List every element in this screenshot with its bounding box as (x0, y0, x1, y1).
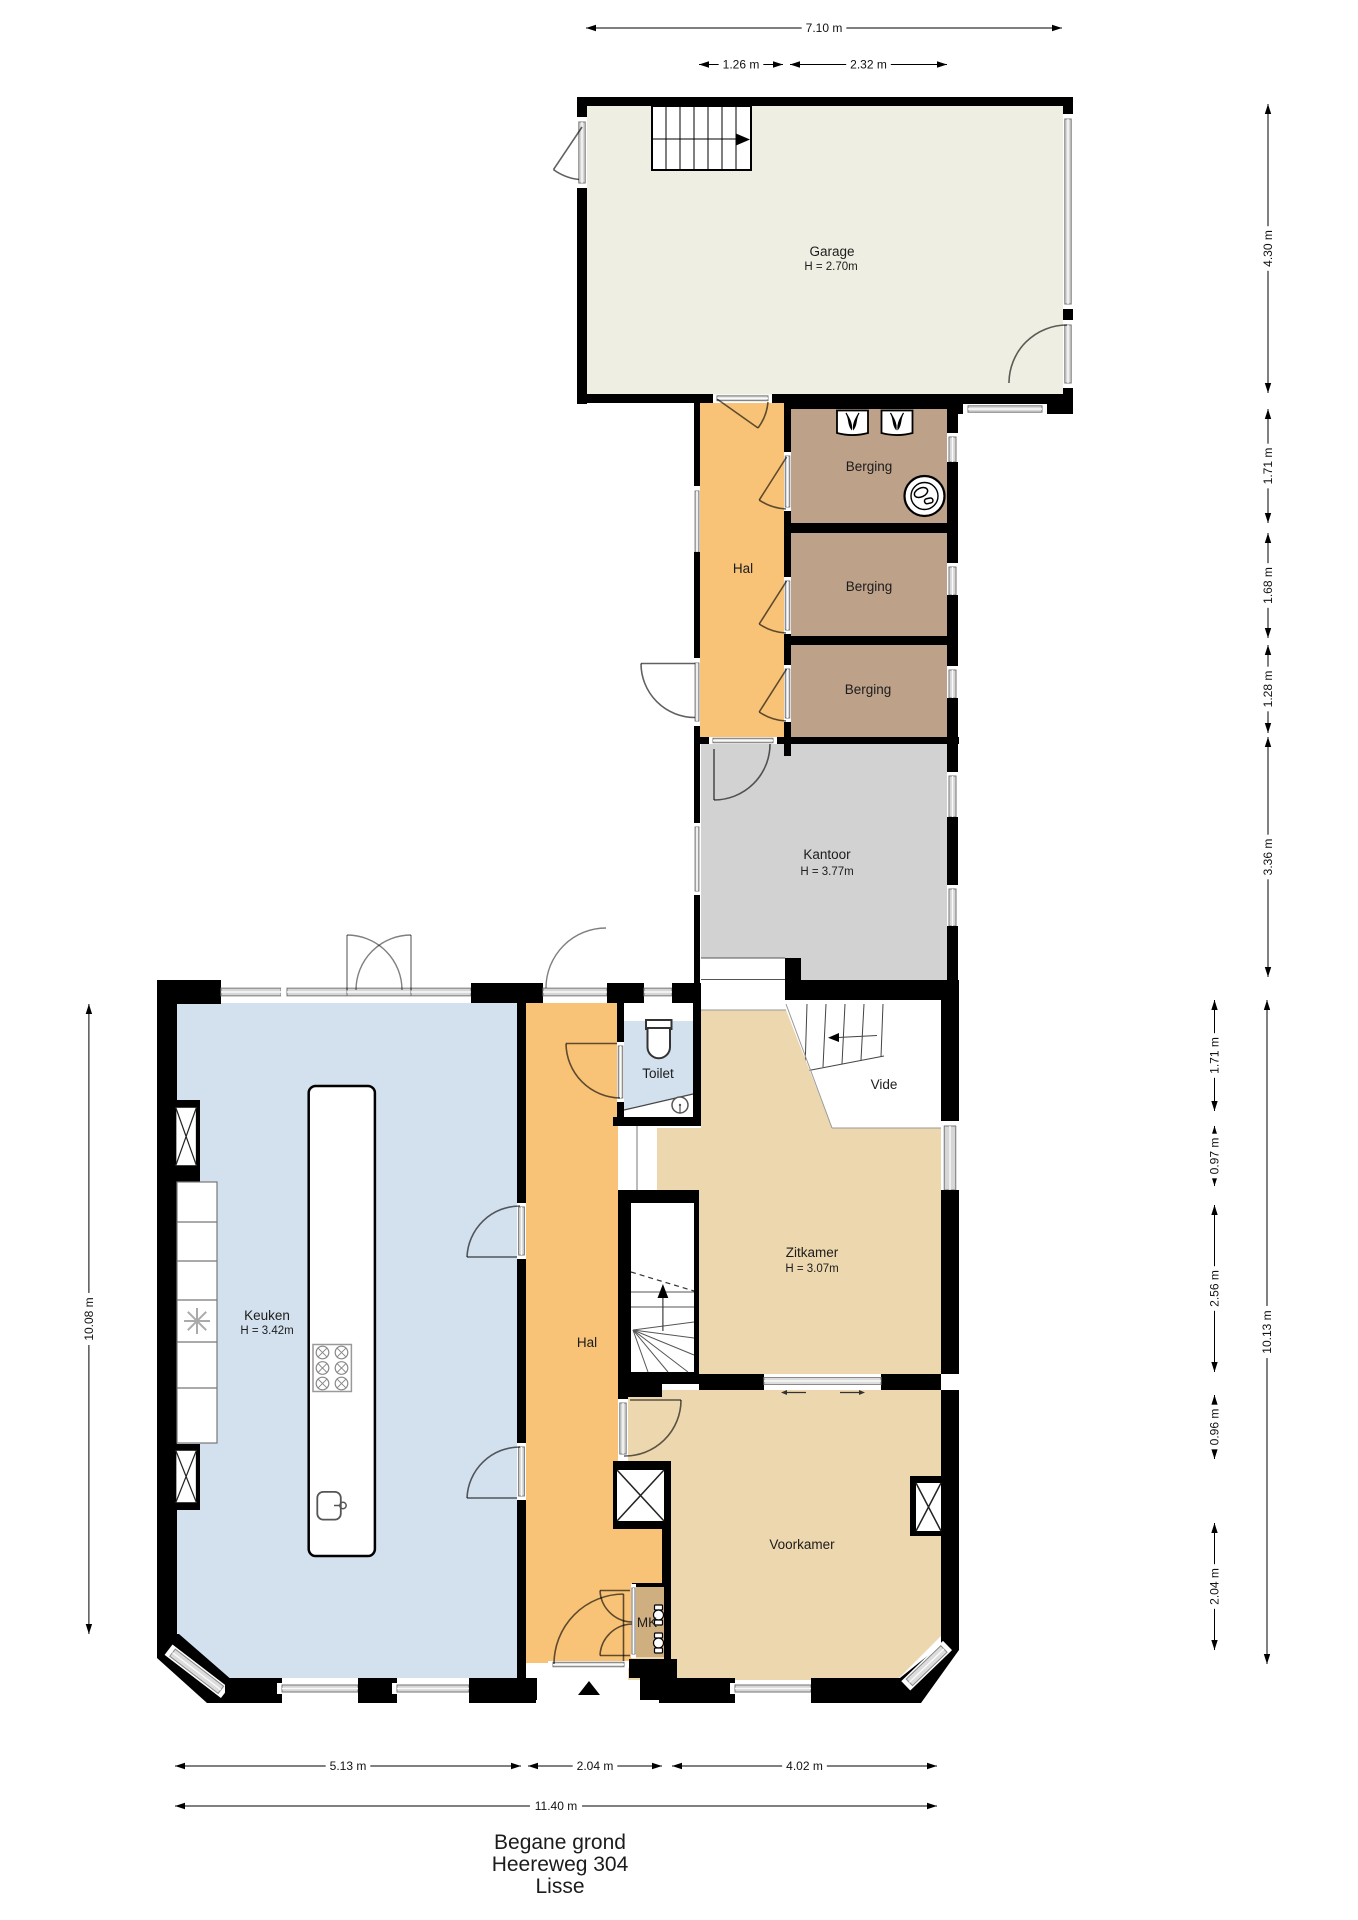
svg-text:Garage: Garage (809, 244, 854, 259)
svg-text:Hal: Hal (577, 1335, 597, 1350)
svg-text:4.30 m: 4.30 m (1261, 230, 1275, 267)
svg-text:1.71 m: 1.71 m (1261, 448, 1275, 485)
svg-text:Berging: Berging (846, 579, 893, 594)
svg-text:1.28 m: 1.28 m (1261, 671, 1275, 708)
svg-text:4.02 m: 4.02 m (786, 1759, 823, 1773)
svg-text:3.36 m: 3.36 m (1261, 839, 1275, 876)
svg-text:Zitkamer: Zitkamer (786, 1245, 839, 1260)
svg-text:Begane grond: Begane grond (494, 1831, 626, 1854)
svg-text:Berging: Berging (846, 459, 893, 474)
svg-text:7.10 m: 7.10 m (806, 21, 843, 35)
svg-text:H = 2.70m: H = 2.70m (804, 261, 857, 273)
svg-text:0.96 m: 0.96 m (1208, 1409, 1222, 1446)
svg-text:Hal: Hal (733, 561, 753, 576)
svg-text:Keuken: Keuken (244, 1308, 290, 1323)
svg-text:2.32 m: 2.32 m (850, 58, 887, 72)
svg-text:2.04 m: 2.04 m (577, 1759, 614, 1773)
svg-text:1.26 m: 1.26 m (723, 58, 760, 72)
svg-text:10.08 m: 10.08 m (82, 1297, 96, 1340)
svg-text:MK: MK (637, 1615, 657, 1630)
svg-text:11.40 m: 11.40 m (535, 1799, 577, 1813)
svg-text:Berging: Berging (845, 682, 892, 697)
svg-text:5.13 m: 5.13 m (330, 1759, 367, 1773)
svg-text:2.04 m: 2.04 m (1208, 1568, 1222, 1605)
svg-text:Lisse: Lisse (535, 1875, 584, 1898)
svg-text:H = 3.77m: H = 3.77m (800, 866, 853, 878)
svg-text:1.68 m: 1.68 m (1261, 567, 1275, 604)
svg-text:Kantoor: Kantoor (803, 847, 851, 862)
svg-text:2.56 m: 2.56 m (1208, 1270, 1222, 1307)
svg-text:1.71 m: 1.71 m (1208, 1037, 1222, 1074)
svg-text:Toilet: Toilet (642, 1066, 674, 1081)
svg-text:Voorkamer: Voorkamer (769, 1537, 835, 1552)
svg-text:10.13 m: 10.13 m (1260, 1310, 1274, 1353)
svg-text:H = 3.42m: H = 3.42m (240, 1325, 293, 1337)
svg-text:0.97 m: 0.97 m (1208, 1138, 1222, 1175)
svg-text:Vide: Vide (871, 1077, 898, 1092)
svg-text:Heereweg 304: Heereweg 304 (492, 1853, 629, 1876)
svg-text:H = 3.07m: H = 3.07m (785, 1263, 838, 1275)
